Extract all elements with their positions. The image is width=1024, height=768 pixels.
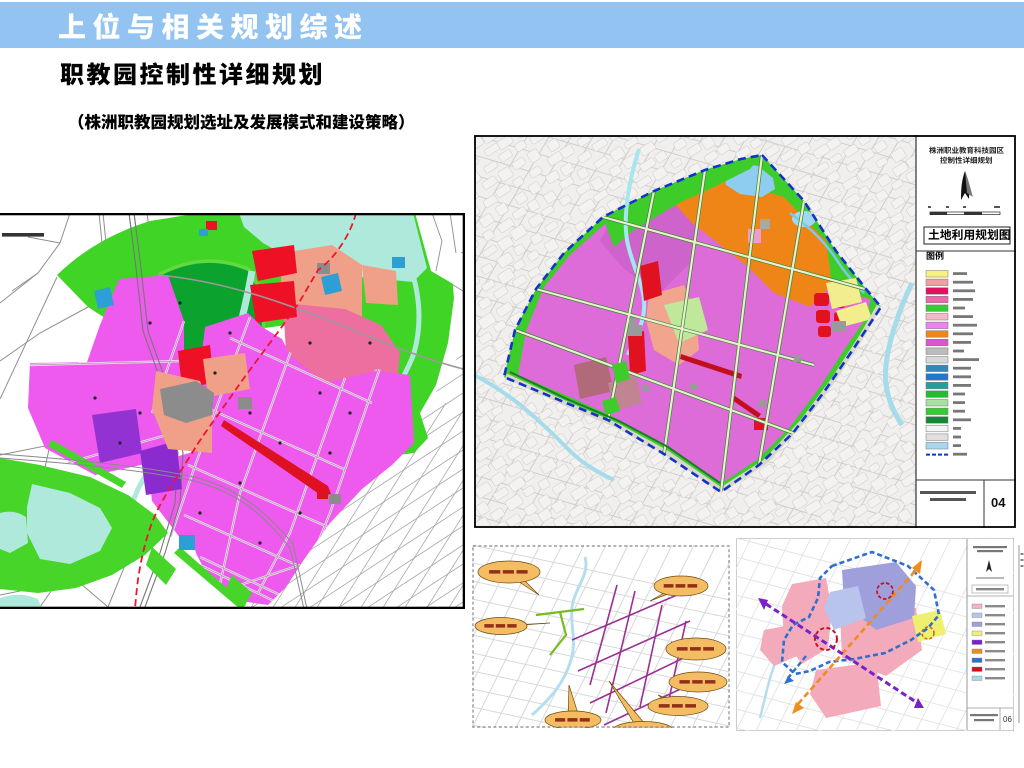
- svg-text:06: 06: [1003, 715, 1012, 724]
- svg-text:04: 04: [991, 495, 1006, 510]
